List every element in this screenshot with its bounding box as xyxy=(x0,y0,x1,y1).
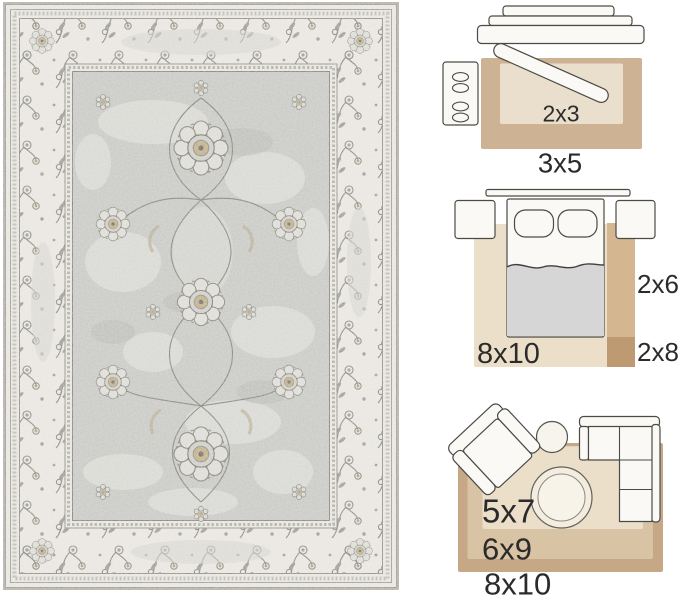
side-table-icon xyxy=(537,422,568,453)
headboard-icon xyxy=(486,190,630,197)
rug-size-guide-image: 2x3 3x5 8x10 2x6 2x8 xyxy=(0,0,679,596)
label-2x6: 2x6 xyxy=(637,269,679,299)
runner-rug-2x8-extension xyxy=(607,337,635,367)
label-6x9: 6x9 xyxy=(482,532,532,567)
pillow-icon xyxy=(515,210,554,237)
label-8x10-bedroom: 8x10 xyxy=(477,338,540,370)
nightstand-right-icon xyxy=(616,201,655,239)
label-2x8: 2x8 xyxy=(637,337,679,367)
label-2x3: 2x3 xyxy=(542,101,579,127)
size-guide: 2x3 3x5 8x10 2x6 2x8 xyxy=(430,0,679,596)
console-table-icon xyxy=(478,6,645,44)
scene-entryway: 2x3 3x5 xyxy=(443,6,644,179)
scene-living-room: 5x7 6x9 8x10 xyxy=(444,399,663,596)
bed-icon xyxy=(507,199,604,337)
pillow-icon xyxy=(558,210,597,237)
label-8x10-living: 8x10 xyxy=(484,567,551,596)
coffee-table-icon xyxy=(531,467,592,528)
label-5x7: 5x7 xyxy=(482,493,535,530)
rug-distressed-texture-overlay xyxy=(3,2,399,590)
scene-bedroom: 8x10 2x6 2x8 xyxy=(455,190,679,371)
rug-photo xyxy=(3,2,399,590)
label-3x5: 3x5 xyxy=(538,148,582,179)
blanket xyxy=(507,264,604,336)
runner-rug-2x6 xyxy=(607,223,635,337)
nightstand-left-icon xyxy=(455,201,495,239)
shoe-cabinet-icon xyxy=(443,62,478,125)
